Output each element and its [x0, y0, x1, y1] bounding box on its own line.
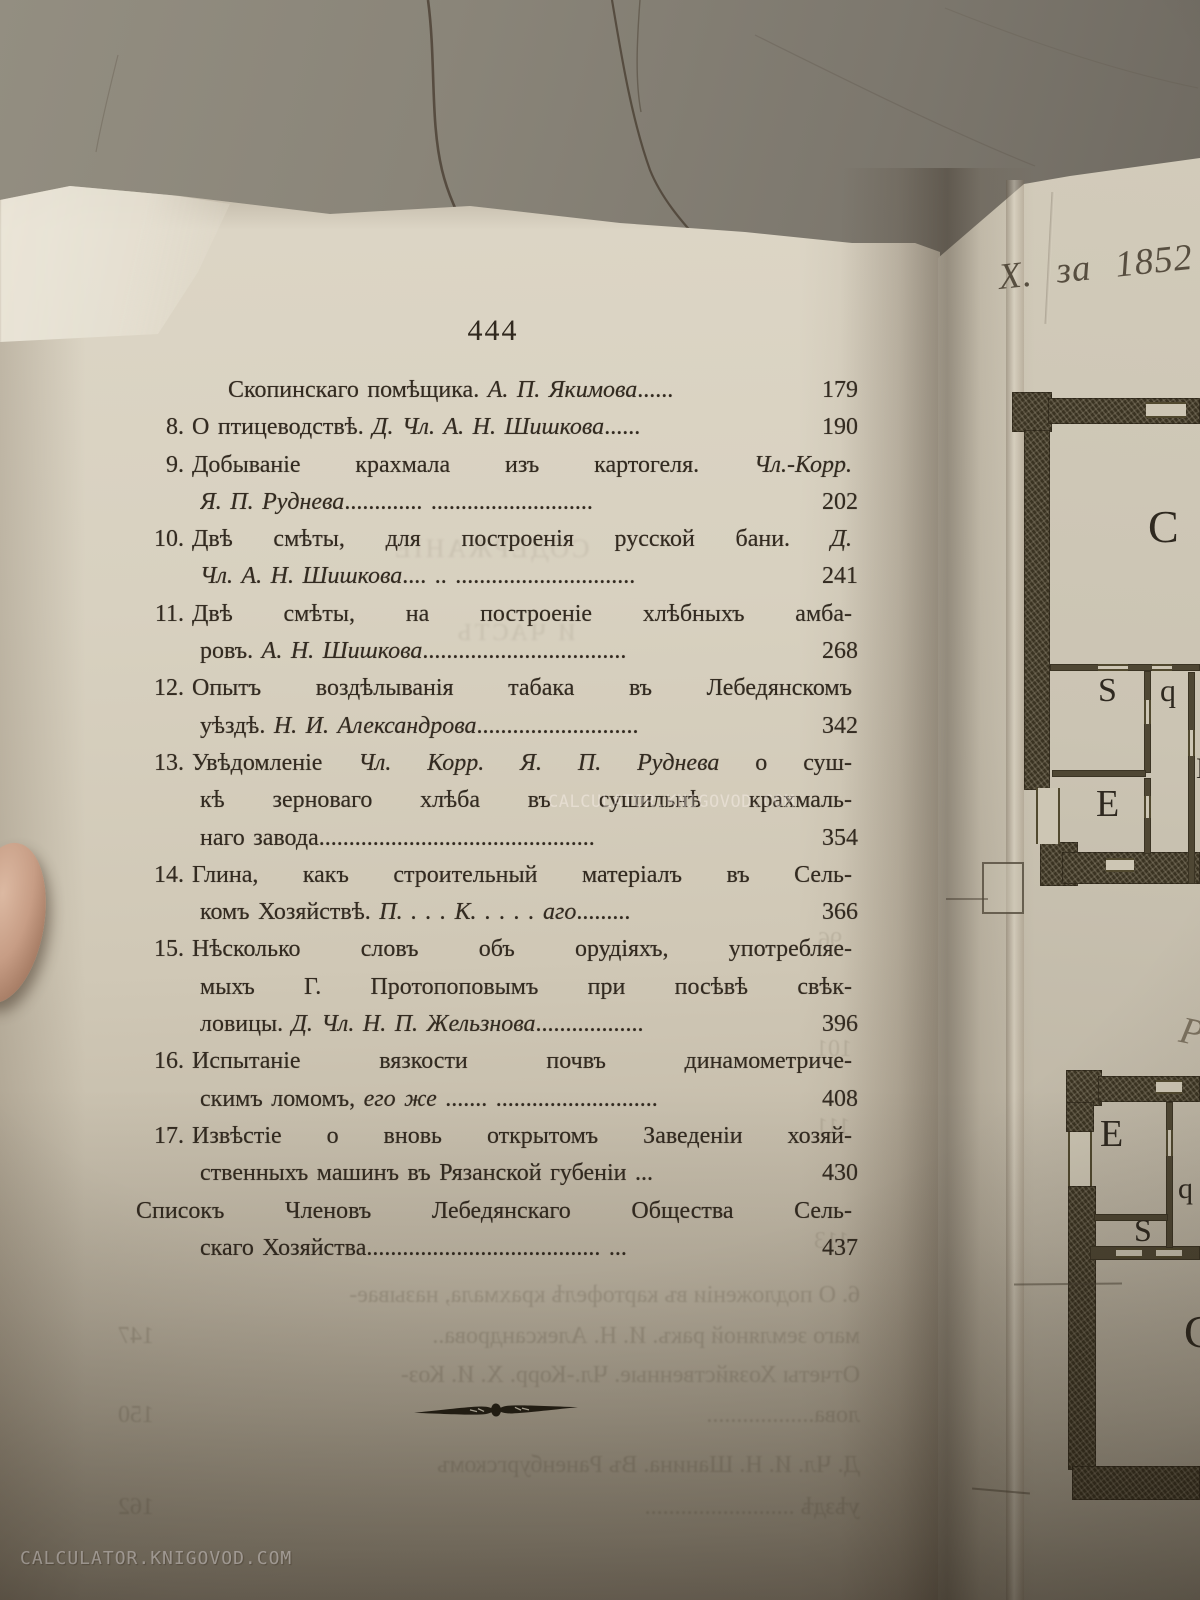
- toc-row: ровъ. А. Н. Шишкова.....................…: [128, 633, 858, 670]
- toc-entry-number: 10.: [128, 521, 192, 558]
- toc-entry-page: 190: [804, 409, 858, 446]
- toc-entry-text: мыхъ Г. Протопоповымъ при посѣвѣ свѣк-: [200, 969, 852, 1006]
- toc-entry-text: уѣздѣ. Н. И. Александрова...............…: [200, 708, 798, 745]
- plan-door: [1156, 1248, 1182, 1258]
- toc-entry-number: 15.: [128, 931, 192, 968]
- toc-row: скимъ ломомъ, его же ....... ...........…: [128, 1081, 858, 1118]
- toc-entry-page: 366: [804, 894, 858, 931]
- toc-entry-text: наго завода.............................…: [200, 820, 798, 857]
- toc-entry-text: комъ Хозяйствѣ. П. . . . К. . . . . аго.…: [200, 894, 798, 931]
- plan-partition: [1188, 672, 1195, 884]
- toc-row: 10.Двѣ смѣты, для построенія русской бан…: [128, 521, 858, 558]
- toc-entry-text: кѣ зерноваго хлѣба въ сушильнѣ крахмаль-: [200, 782, 852, 819]
- toc-entry-text: Двѣ смѣты, на построеніе хлѣбныхъ амба-: [192, 596, 852, 633]
- plan-wall: [1066, 1070, 1102, 1106]
- plan-wall: [1012, 392, 1052, 432]
- toc-row: наго завода.............................…: [128, 820, 858, 857]
- toc-row: 14.Глина, какъ строительный матеріалъ въ…: [128, 857, 858, 894]
- room-label-e: E: [1096, 782, 1119, 826]
- toc-entry-page: 396: [804, 1006, 858, 1043]
- toc-row: 16.Испытаніе вязкости почвъ динамометрич…: [128, 1043, 858, 1080]
- plan-window: [1156, 1080, 1182, 1094]
- toc-entry-text: Извѣстіе о вновь открытомъ Заведеніи хоз…: [192, 1118, 852, 1155]
- toc-entry-page: 268: [804, 633, 858, 670]
- toc-entry-text: Двѣ смѣты, для построенія русской бани. …: [192, 521, 852, 558]
- toc-entry-text: О птицеводствѣ. Д. Чл. А. Н. Шишкова....…: [192, 409, 798, 446]
- toc-entry-page: 179: [804, 372, 858, 409]
- plan-partition: [1052, 770, 1146, 777]
- toc-entry-text: Нѣсколько словъ объ орудіяхъ, употребляе…: [192, 931, 852, 968]
- plan-construction-line: [946, 898, 988, 900]
- plan-door: [1106, 858, 1134, 872]
- plan-door: [1152, 664, 1172, 671]
- room-label-q: q: [1178, 1172, 1193, 1206]
- page-number: 444: [128, 314, 858, 348]
- toc-entry-text: Увѣдомленіе Чл. Корр. Я. П. Руднева о су…: [192, 745, 852, 782]
- toc-entry-page: 354: [804, 820, 858, 857]
- toc-row: уѣздѣ. Н. И. Александрова...............…: [128, 708, 858, 745]
- plan-wall: [1024, 430, 1050, 790]
- toc-entry-text: Опытъ воздѣлыванія табака въ Лебедянском…: [192, 670, 852, 707]
- toc-list: Скопинскаго помѣщика. А. П. Якимова.....…: [128, 372, 858, 1267]
- toc-entry-number: 17.: [128, 1118, 192, 1155]
- toc-entry-page: 202: [804, 484, 858, 521]
- plan-window: [1146, 402, 1186, 418]
- toc-row: 13.Увѣдомленіе Чл. Корр. Я. П. Руднева о…: [128, 745, 858, 782]
- room-label-s: S: [1098, 672, 1117, 710]
- plan-partition: [1094, 1214, 1168, 1221]
- toc-entry-number: 16.: [128, 1043, 192, 1080]
- toc-entry-text: Скопинскаго помѣщика. А. П. Якимова.....…: [228, 372, 798, 409]
- toc-entry-text: скаго Хозяйства.........................…: [200, 1230, 798, 1267]
- toc-row: Я. П. Руднева............. .............…: [128, 484, 858, 521]
- toc-entry-page: 408: [804, 1081, 858, 1118]
- room-label-q: q: [1160, 672, 1176, 709]
- toc-entry-text: Чл. А. Н. Шишкова.... .. ...............…: [200, 558, 798, 595]
- toc-entry-text: Добываніе крахмала изъ картогеля. Чл.-Ко…: [192, 447, 852, 484]
- toc-entry-number: 11.: [128, 596, 192, 633]
- toc-entry-page: 241: [804, 558, 858, 595]
- plan-door: [1188, 730, 1195, 756]
- toc-row: кѣ зерноваго хлѣба въ сушильнѣ крахмаль-: [128, 782, 858, 819]
- toc-row: комъ Хозяйствѣ. П. . . . К. . . . . аго.…: [128, 894, 858, 931]
- plan-wall: [1068, 1186, 1096, 1470]
- toc-row: ственныхъ машинъ въ Рязанской губеніи ..…: [128, 1155, 858, 1192]
- toc-entry-text: Я. П. Руднева............. .............…: [200, 484, 798, 521]
- toc-row: мыхъ Г. Протопоповымъ при посѣвѣ свѣк-: [128, 969, 858, 1006]
- plan-door: [1068, 1132, 1092, 1186]
- toc-entry-text: скимъ ломомъ, его же ....... ...........…: [200, 1081, 798, 1118]
- bleedthrough-line: Д. Чл. И. Н. Шанина. Въ Раненбургскомъ: [118, 1452, 860, 1479]
- toc-row: Скопинскаго помѣщика. А. П. Якимова.....…: [128, 372, 858, 409]
- plan-door: [1116, 1248, 1142, 1258]
- plan-door: [1144, 700, 1151, 724]
- toc-row: 9.Добываніе крахмала изъ картогеля. Чл.-…: [128, 447, 858, 484]
- room-label-e: E: [1100, 1112, 1123, 1156]
- toc-entry-number: 8.: [128, 409, 192, 446]
- toc-entry-text: Списокъ Членовъ Лебедянскаго Общества Се…: [136, 1193, 852, 1230]
- plan-wall: [1098, 1076, 1200, 1102]
- bleedthrough-line: Отчеты Хозяйственные. Чл.-Корр. Х. И. Ко…: [118, 1362, 860, 1389]
- toc-row: Списокъ Членовъ Лебедянскаго Общества Се…: [128, 1193, 858, 1230]
- plan-door: [1144, 796, 1151, 818]
- toc-entry-text: Испытаніе вязкости почвъ динамометриче-: [192, 1043, 852, 1080]
- bleedthrough-line: 6. О подложеніи въ картофелѣ крахмала, н…: [118, 1282, 860, 1309]
- toc-entry-text: ровъ. А. Н. Шишкова.....................…: [200, 633, 798, 670]
- toc-entry-page: 430: [804, 1155, 858, 1192]
- toc-entry-number: 13.: [128, 745, 192, 782]
- toc-row: 17.Извѣстіе о вновь открытомъ Заведеніи …: [128, 1118, 858, 1155]
- plan-door: [1098, 664, 1128, 671]
- room-label-partial: Б: [1196, 752, 1200, 786]
- plan-wall: [1066, 1102, 1094, 1132]
- toc-row: 15.Нѣсколько словъ объ орудіяхъ, употреб…: [128, 931, 858, 968]
- plan-window: [1036, 788, 1060, 844]
- toc-entry-number: 12.: [128, 670, 192, 707]
- photo-of-book: Х. за 1852 C S q E Б Р E q S C: [0, 0, 1200, 1600]
- plan-wall: [1072, 1466, 1200, 1500]
- toc-entry-page: 437: [804, 1230, 858, 1267]
- toc-row: ловицы. Д. Чл. Н. П. Жельзнова..........…: [128, 1006, 858, 1043]
- toc-entry-text: ственныхъ машинъ въ Рязанской губеніи ..…: [200, 1155, 798, 1192]
- toc-row: Чл. А. Н. Шишкова.... .. ...............…: [128, 558, 858, 595]
- plan-partition: [1166, 1102, 1173, 1248]
- toc-entry-text: ловицы. Д. Чл. Н. П. Жельзнова..........…: [200, 1006, 798, 1043]
- toc-entry-page: 342: [804, 708, 858, 745]
- room-label-c: C: [1148, 500, 1179, 553]
- plan-porch-outline: [982, 862, 1024, 914]
- plan-door: [1166, 1130, 1173, 1156]
- room-label-c: C: [1184, 1305, 1200, 1358]
- bleedthrough-line: маго земляной ракъ. И. Н. Александрова..…: [118, 1323, 860, 1350]
- toc-entry-number: 14.: [128, 857, 192, 894]
- toc-row: 8.О птицеводствѣ. Д. Чл. А. Н. Шишкова..…: [128, 409, 858, 446]
- toc-entry-text: Глина, какъ строительный матеріалъ въ Се…: [192, 857, 852, 894]
- bleedthrough-line: уѣздѣ .........................162: [118, 1494, 860, 1521]
- toc-row: 11.Двѣ смѣты, на построеніе хлѣбныхъ амб…: [128, 596, 858, 633]
- toc-row: 12.Опытъ воздѣлыванія табака въ Лебедянс…: [128, 670, 858, 707]
- room-label-s: S: [1134, 1212, 1152, 1249]
- toc-row: скаго Хозяйства.........................…: [128, 1230, 858, 1267]
- toc-entry-number: 9.: [128, 447, 192, 484]
